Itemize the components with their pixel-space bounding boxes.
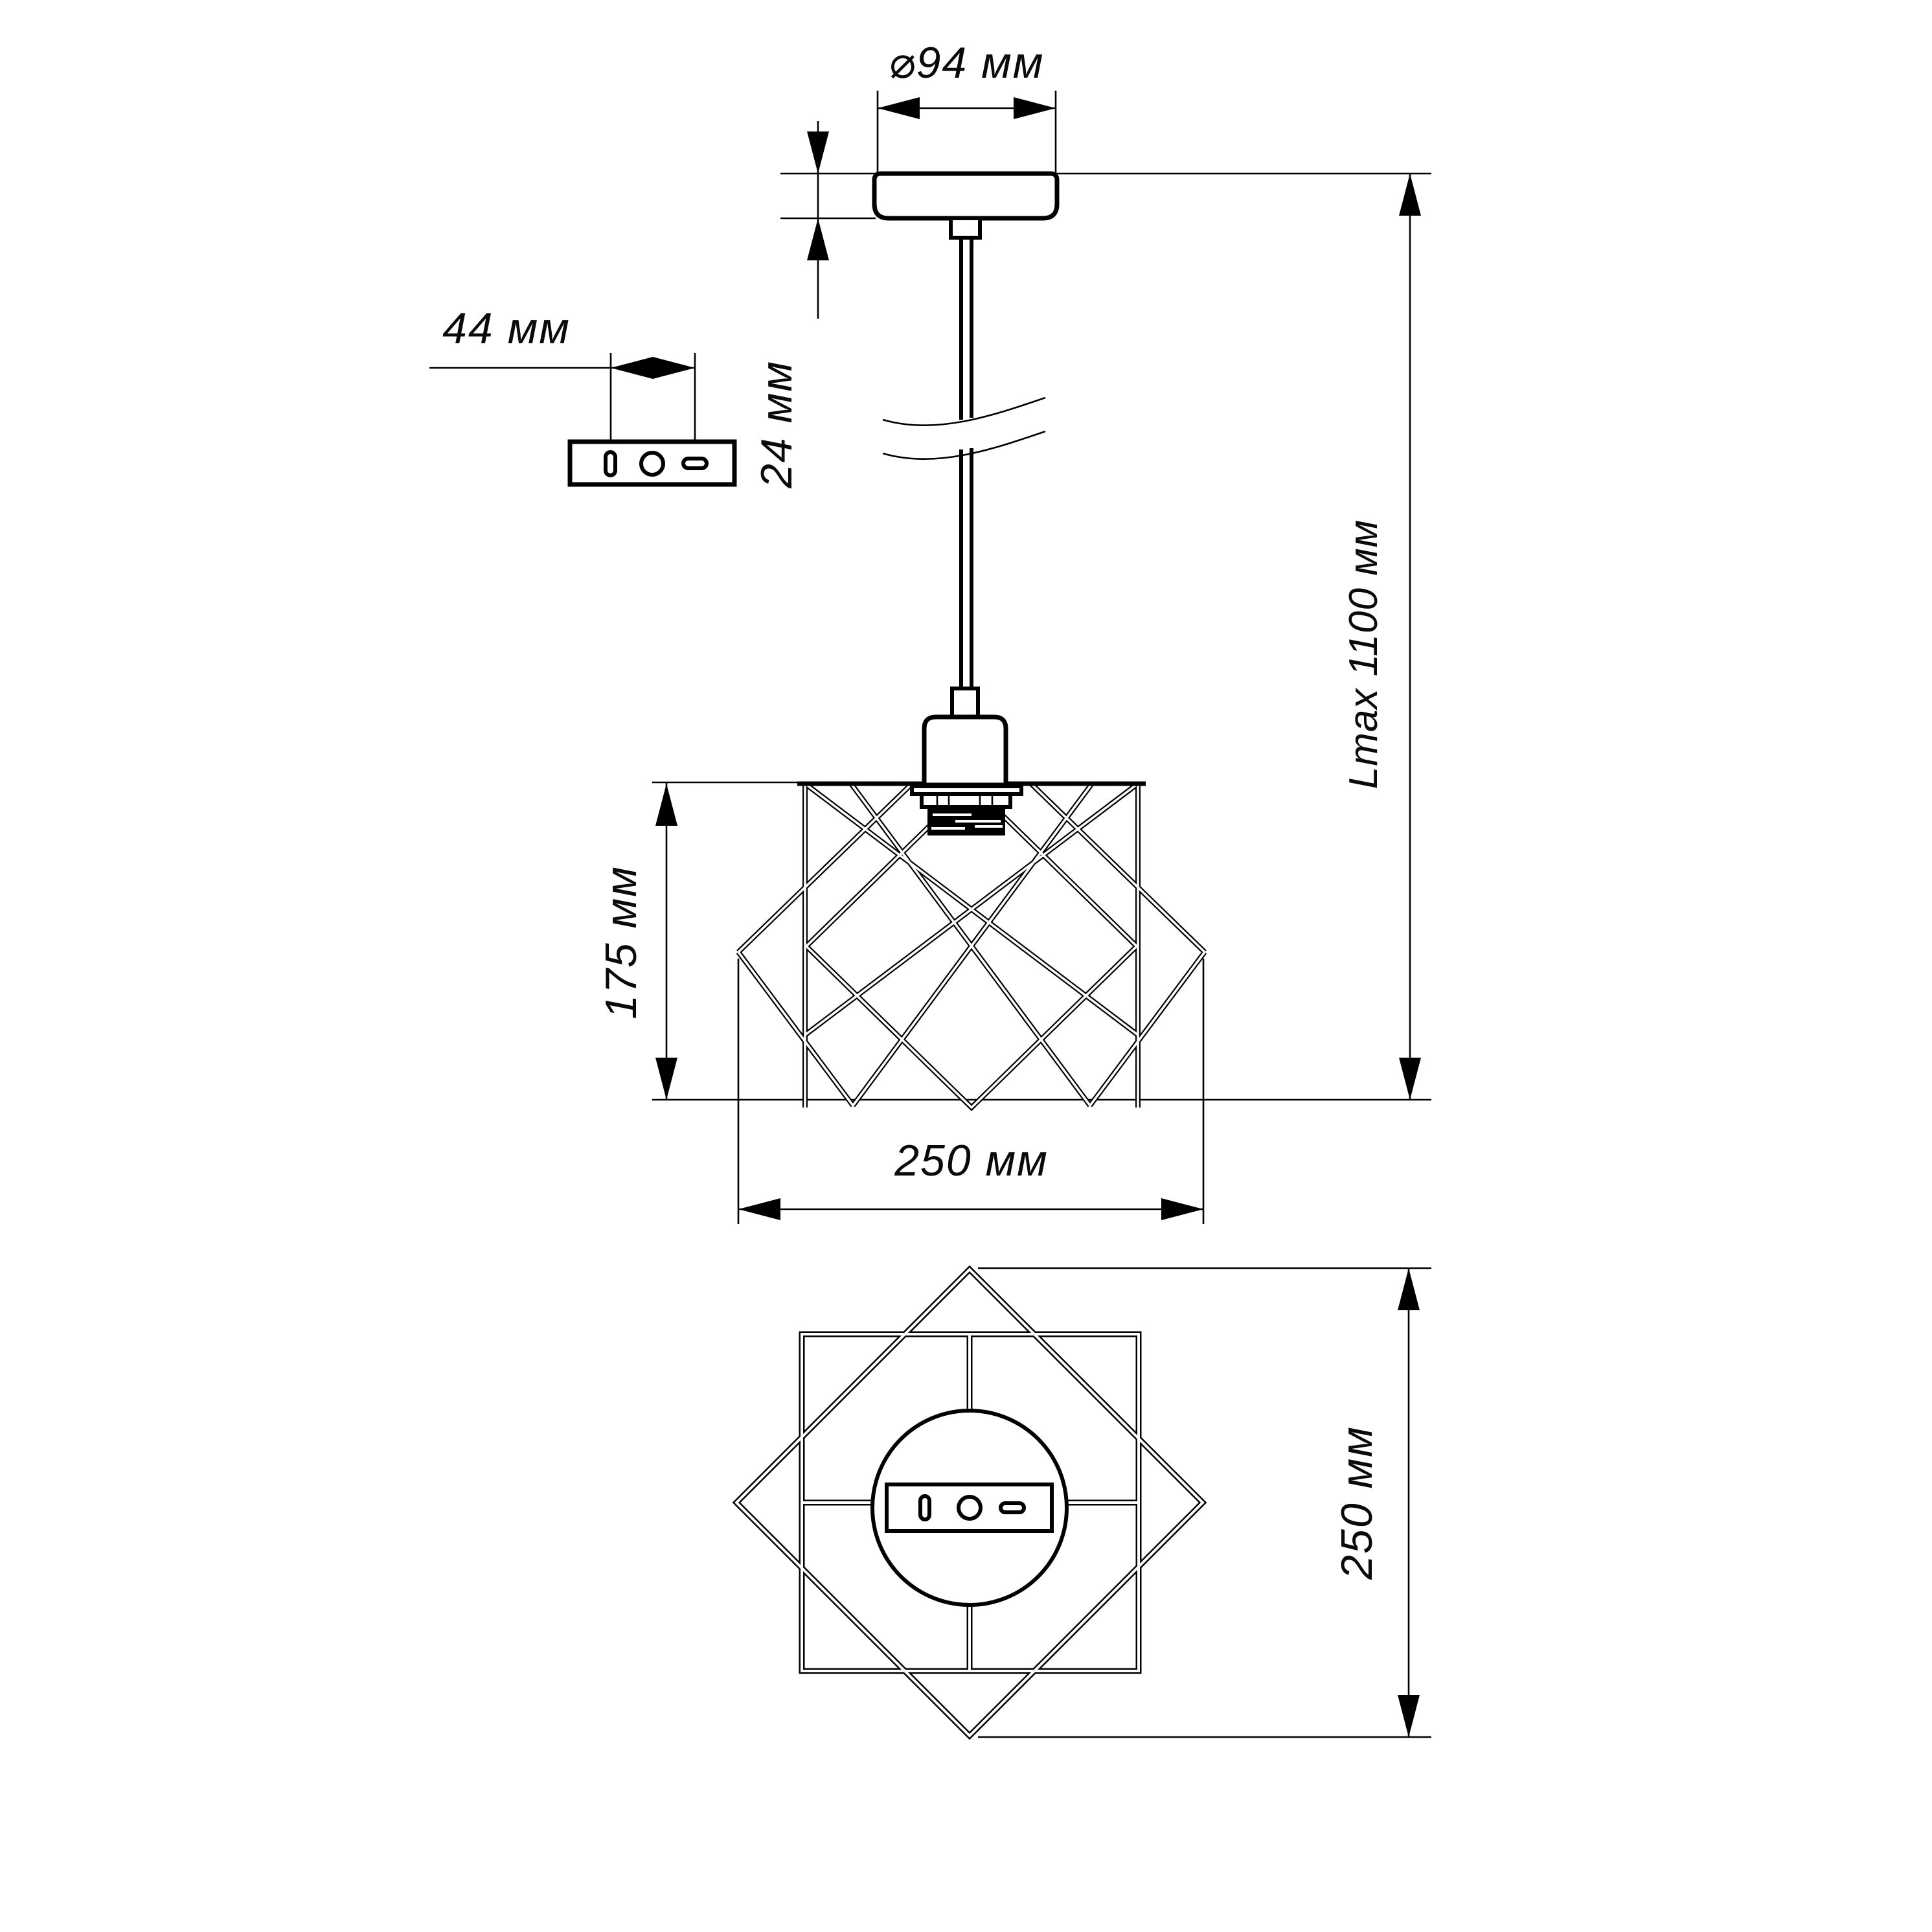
lamp-socket — [912, 688, 1021, 835]
cord-lower-segment — [961, 448, 972, 688]
bottom-view — [736, 1269, 1203, 1736]
ceiling-canopy — [874, 174, 1057, 238]
socket-cord-grip — [952, 688, 978, 717]
bracket-plate — [570, 442, 734, 484]
shade-depth-label: 250 мм — [1332, 1426, 1381, 1580]
bracket-plate-plan — [887, 1484, 1052, 1531]
max-length-label: Lmax 1100 мм — [1341, 519, 1386, 789]
shade-height-label: 175 мм — [597, 865, 646, 1019]
bracket-spacing-label: 44 мм — [442, 304, 571, 353]
canopy-body — [874, 174, 1057, 218]
socket-cap — [924, 717, 1006, 785]
cord-upper-segment — [961, 238, 972, 420]
cable-break-symbol — [883, 398, 1045, 426]
dimension-labels: ⌀94 мм 24 мм 44 мм Lmax 1100 мм 175 мм 2… — [442, 38, 1386, 1580]
pendant-lamp-drawing: ⌀94 мм 24 мм 44 мм Lmax 1100 мм 175 мм 2… — [0, 0, 1932, 1932]
canopy-cord-grip — [951, 218, 980, 238]
technical-drawing-page: ⌀94 мм 24 мм 44 мм Lmax 1100 мм 175 мм 2… — [0, 0, 1932, 1932]
suspension-cord — [883, 238, 1045, 688]
canopy-diameter-label: ⌀94 мм — [889, 38, 1045, 87]
socket-nut — [922, 794, 1010, 807]
mounting-bracket-detail — [570, 442, 734, 484]
canopy-height-label: 24 мм — [752, 360, 801, 489]
shade-width-label: 250 мм — [894, 1136, 1049, 1185]
